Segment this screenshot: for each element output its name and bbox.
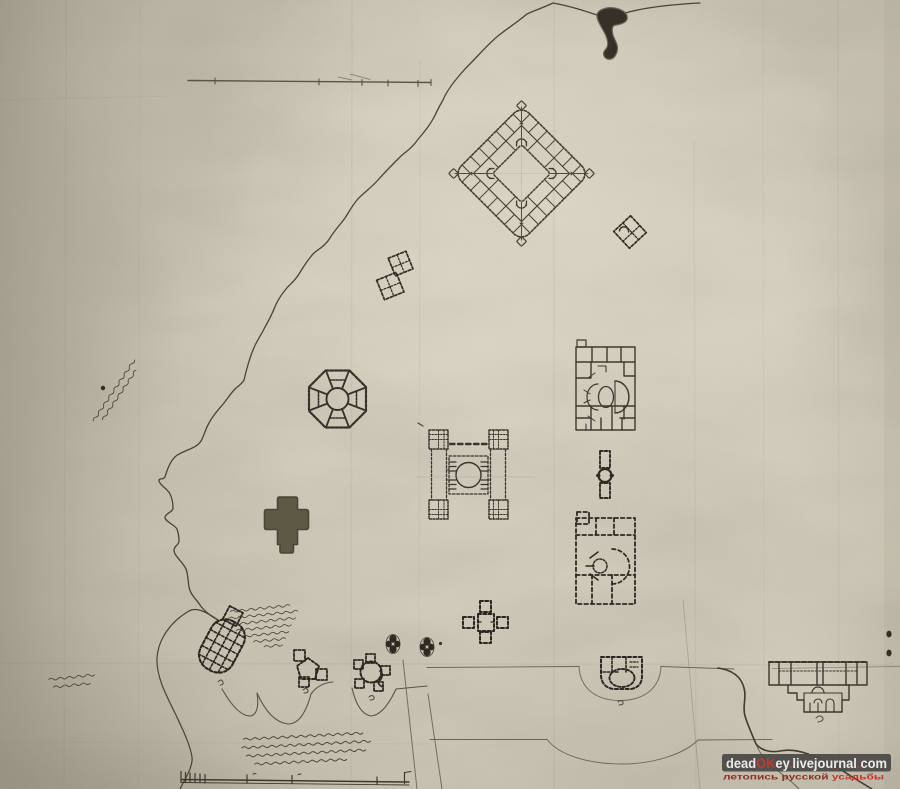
svg-text:летопись русской усадьбы: летопись русской усадьбы	[723, 773, 884, 782]
svg-text:deadOKey.livejournal.com: deadOKey.livejournal.com	[726, 756, 887, 772]
